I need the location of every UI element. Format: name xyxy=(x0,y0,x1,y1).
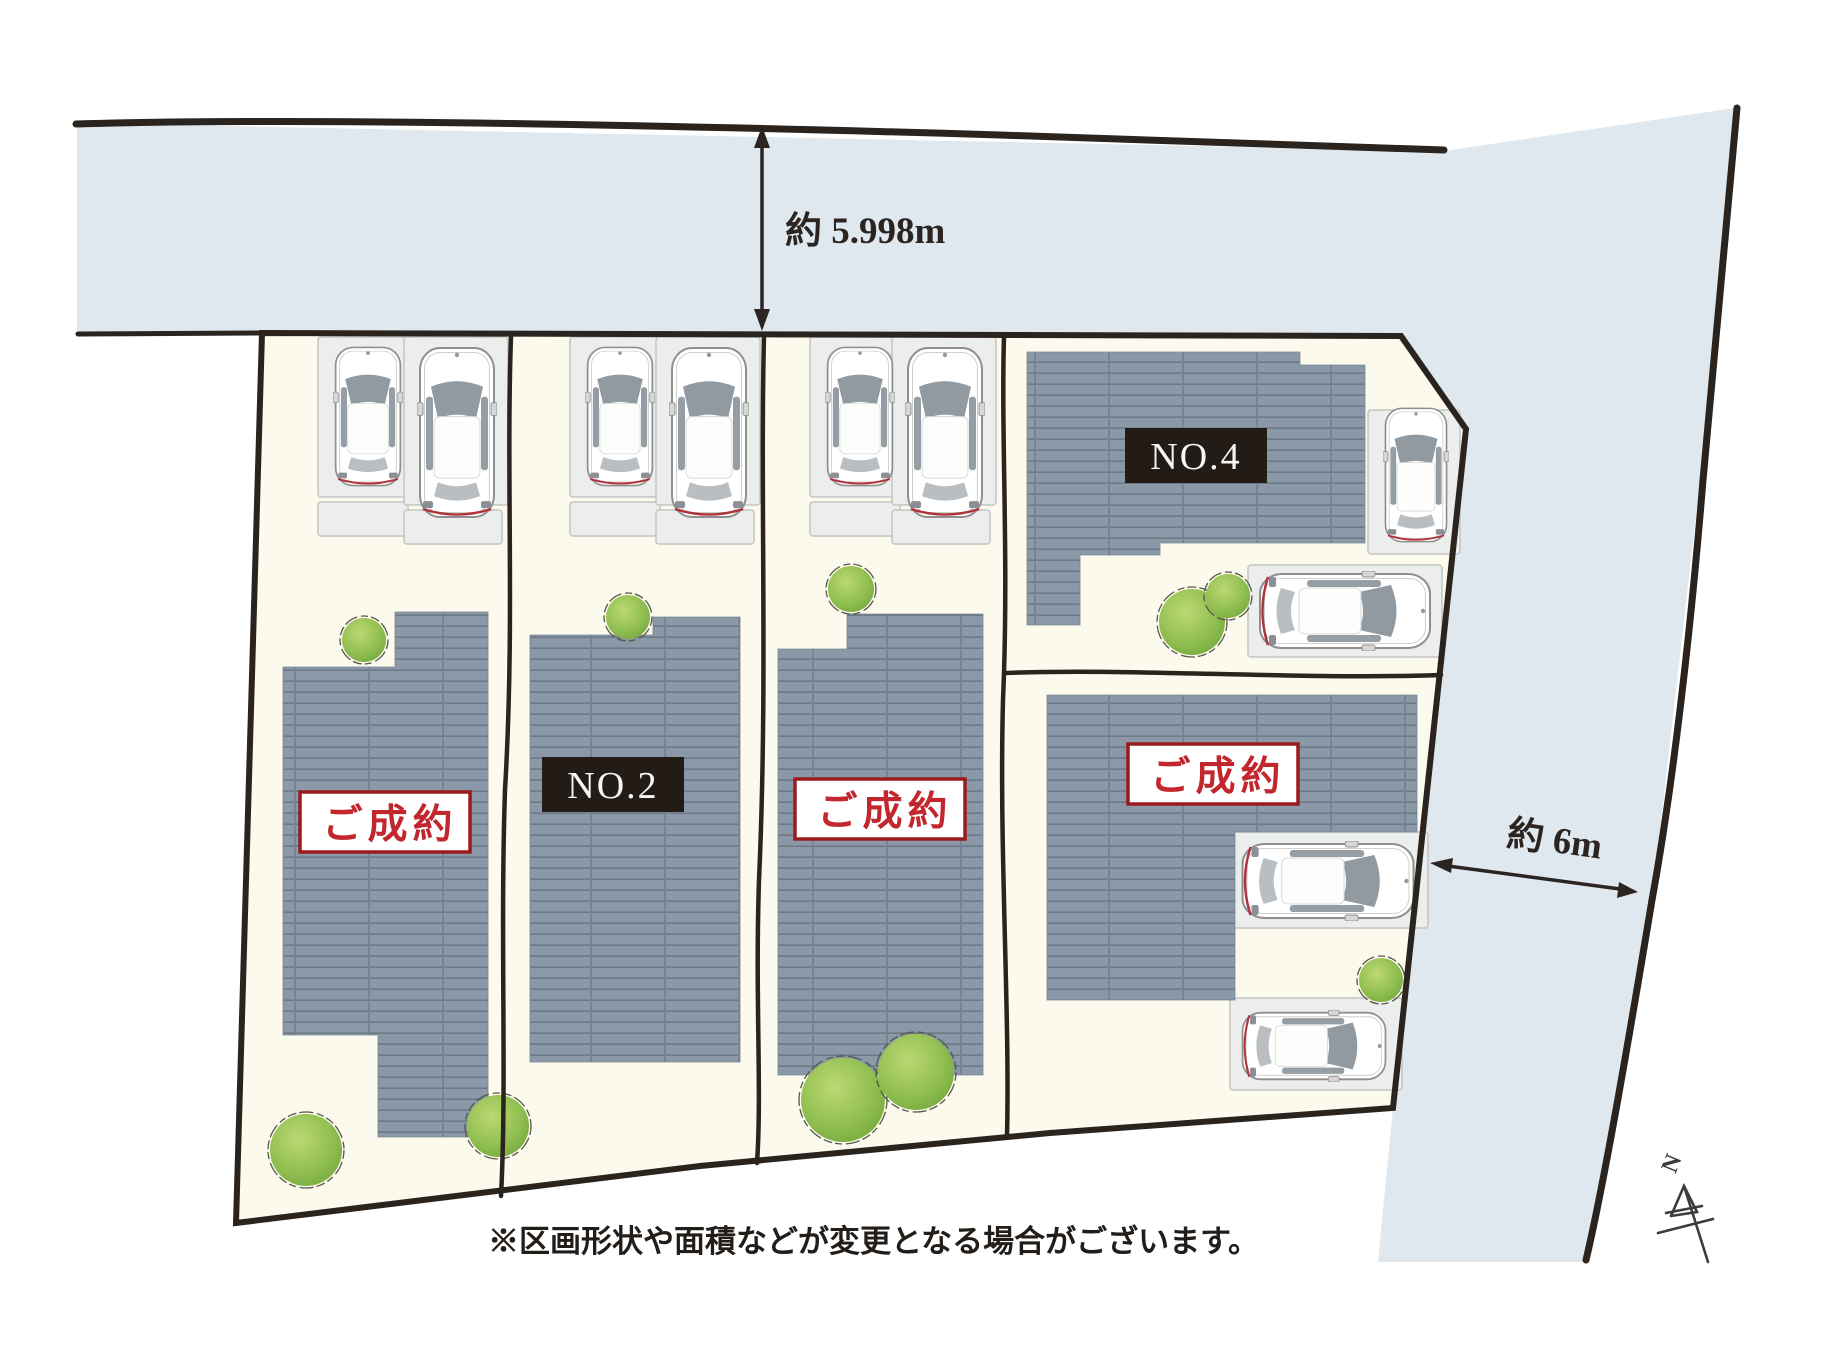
lot-2-number-text: NO.2 xyxy=(567,765,658,807)
car-icon xyxy=(1383,408,1449,541)
disclaimer-note: ※区画形状や面積などが変更となる場合がございます。 xyxy=(488,1224,1259,1259)
car-icon xyxy=(333,347,403,485)
parking-pad xyxy=(318,502,408,536)
top-road-width-text: 約 5.998m xyxy=(785,210,945,252)
lot-4-number-text: NO.4 xyxy=(1150,436,1241,478)
site-plan: ご成約 NO.2 ご成約 NO.4 ご成約 約 5.998m 約 6m ※区画形… xyxy=(0,0,1827,1364)
compass-tick-2 xyxy=(1658,1219,1713,1233)
tree-icon xyxy=(826,564,876,614)
lot-2-label: NO.2 xyxy=(542,757,684,812)
lot-5-label: ご成約 xyxy=(1128,744,1298,804)
parking-pad xyxy=(810,502,900,536)
car-icon xyxy=(1243,1010,1386,1082)
lot-1-label: ご成約 xyxy=(300,792,470,852)
lot-1-status-text: ご成約 xyxy=(323,802,458,847)
tree-icon xyxy=(876,1032,956,1112)
tree-icon xyxy=(799,1056,887,1144)
lot-4-label: NO.4 xyxy=(1125,428,1267,483)
car-icon xyxy=(417,348,497,517)
parking-pad xyxy=(570,502,660,536)
car-icon xyxy=(669,348,749,517)
car-icon xyxy=(1243,841,1414,921)
house-lot-2 xyxy=(530,617,740,1062)
compass-north-text: N xyxy=(1657,1150,1688,1176)
lot-3-label: ご成約 xyxy=(795,779,965,839)
house-lot-3 xyxy=(778,614,983,1075)
north-compass: N xyxy=(1657,1150,1713,1262)
lot-3-status-text: ご成約 xyxy=(818,789,953,834)
car-icon xyxy=(825,347,895,485)
road-bottom-left-line xyxy=(78,333,262,334)
car-icon xyxy=(905,348,985,517)
car-icon xyxy=(585,347,655,485)
car-icon xyxy=(1260,571,1430,651)
lot-5-status-text: ご成約 xyxy=(1151,754,1286,799)
